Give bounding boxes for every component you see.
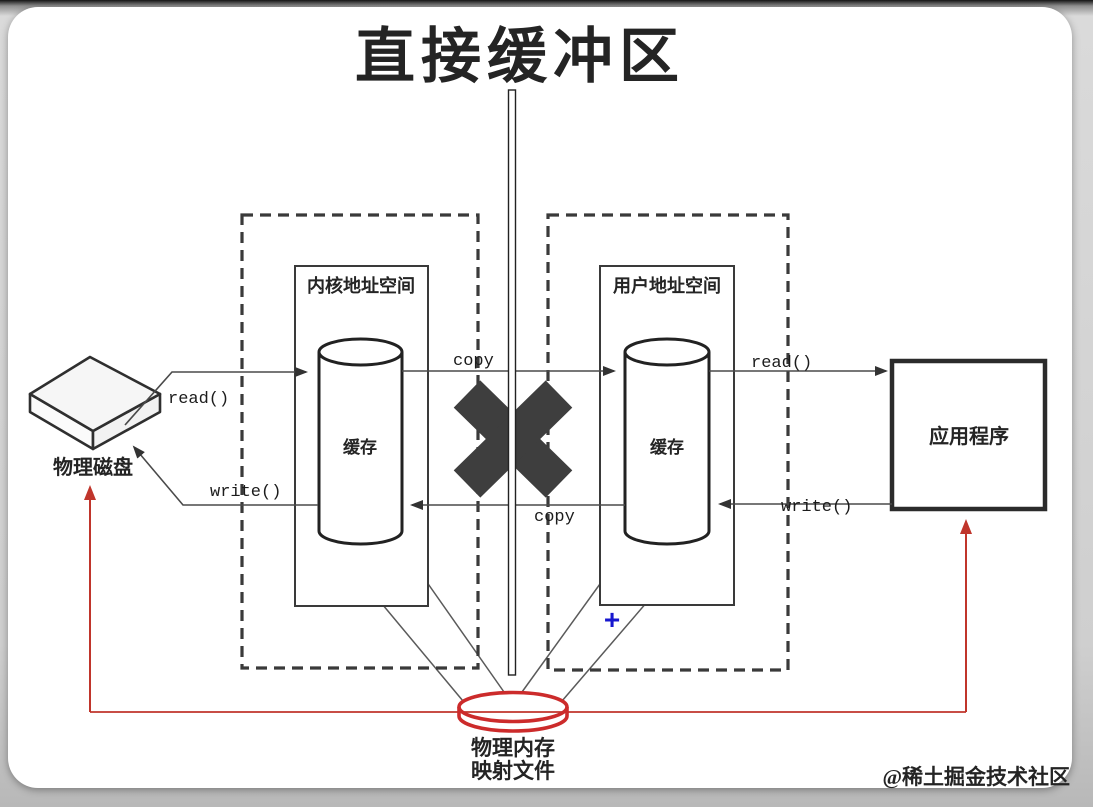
diagram-title: 直接缓冲区 [355, 24, 685, 90]
application-label: 应用程序 [929, 424, 1009, 448]
kernel-buffer-label: 缓存 [343, 437, 377, 457]
user-address-space-label: 用户地址空间 [613, 275, 721, 296]
watermark-text: @稀土掘金技术社区 [882, 765, 1070, 789]
mapped-memory-label-line2: 映射文件 [471, 759, 555, 783]
user-buffer-label: 缓存 [650, 437, 684, 457]
copy-to-kernel-label: copy [534, 508, 575, 527]
app-write-label: write() [781, 498, 852, 517]
cursor-crosshair: + [604, 604, 620, 635]
app-read-label: read() [751, 354, 812, 373]
space-divider-bar [509, 90, 516, 675]
user-buffer-cylinder: 缓存 [625, 339, 709, 544]
disk-read-label: read() [168, 390, 229, 409]
copy-to-user-label: copy [453, 352, 494, 371]
direct-buffer-diagram: 直接缓冲区 内核地址空间 用户地址空间 缓存 缓存 [0, 0, 1093, 807]
disk-write-label: write() [210, 483, 281, 502]
kernel-buffer-cylinder: 缓存 [319, 339, 402, 544]
mapped-memory-label-line1: 物理内存 [471, 736, 555, 760]
screenshot-frame: 直接缓冲区 内核地址空间 用户地址空间 缓存 缓存 [0, 0, 1093, 807]
kernel-address-space-label: 内核地址空间 [307, 275, 415, 296]
physical-disk-label: 物理磁盘 [53, 455, 133, 479]
physical-disk-icon [30, 357, 160, 449]
